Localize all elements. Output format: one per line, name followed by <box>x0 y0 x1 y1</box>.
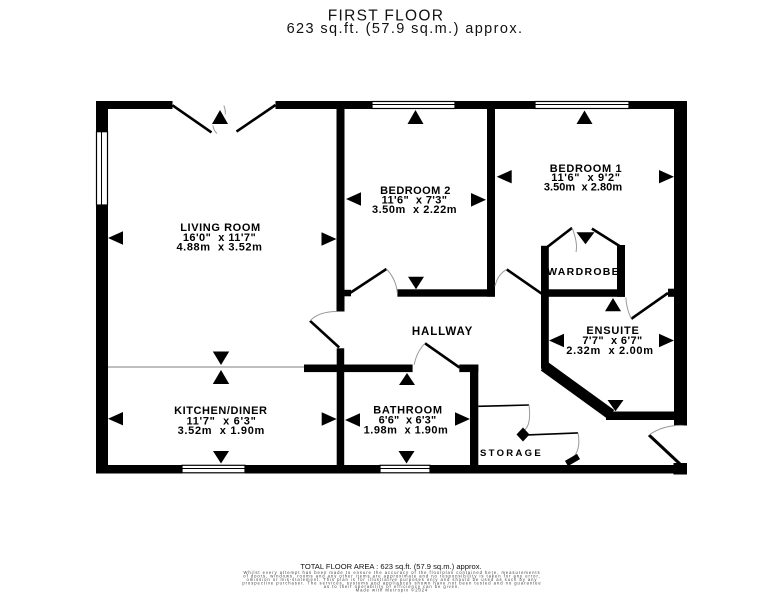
svg-text:Made with Metropix ©2024: Made with Metropix ©2024 <box>356 588 429 593</box>
svg-text:STORAGE: STORAGE <box>480 448 543 459</box>
svg-text:1.98m x 1.90m: 1.98m x 1.90m <box>364 425 449 437</box>
svg-text:2.32m x 2.00m: 2.32m x 2.00m <box>566 345 653 357</box>
svg-text:3.50m x 2.80m: 3.50m x 2.80m <box>544 181 623 193</box>
svg-text:HALLWAY: HALLWAY <box>412 326 473 338</box>
svg-text:WARDROBE: WARDROBE <box>547 266 620 278</box>
svg-text:623 sq.ft. (57.9 sq.m.) approx: 623 sq.ft. (57.9 sq.m.) approx. <box>287 21 524 37</box>
svg-text:4.88m x 3.52m: 4.88m x 3.52m <box>176 242 262 254</box>
svg-text:3.52m x 1.90m: 3.52m x 1.90m <box>178 425 265 437</box>
svg-text:3.50m x 2.22m: 3.50m x 2.22m <box>372 204 457 216</box>
